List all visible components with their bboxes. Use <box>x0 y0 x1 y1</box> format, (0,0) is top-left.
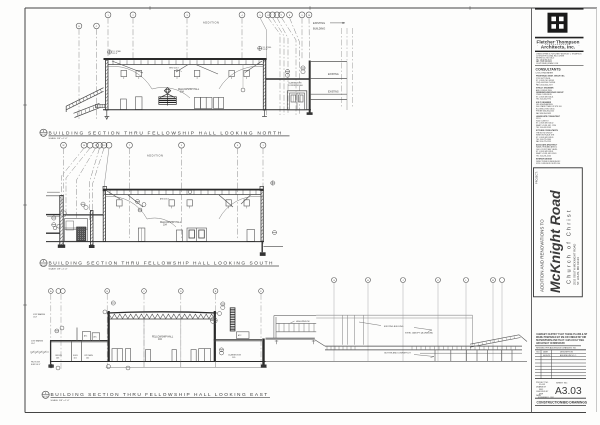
svg-text:EXISTING BUILDING: EXISTING BUILDING <box>384 326 404 328</box>
svg-text:AHU DUCT: AHU DUCT <box>160 198 169 201</box>
svg-text:NO.: NO. <box>537 351 541 353</box>
svg-text:9229 OLIVE BLVD SUITE 100: 9229 OLIVE BLVD SUITE 100 <box>536 163 560 165</box>
svg-text:W: W <box>63 145 65 147</box>
svg-text:ADDITION: ADDITION <box>147 154 163 158</box>
svg-text:ADDENDUM NO. 1: ADDENDUM NO. 1 <box>560 354 576 357</box>
svg-text:.: . <box>579 43 580 47</box>
svg-text:103: 103 <box>56 357 59 359</box>
svg-text:A3.03: A3.03 <box>43 396 49 399</box>
svg-text:HIGH WINDOW: HIGH WINDOW <box>296 321 310 323</box>
svg-text:122'-8": 122'-8" <box>263 49 269 51</box>
svg-text:DESCRIPTION: DESCRIPTION <box>560 351 574 353</box>
svg-text:Architects, Inc.: Architects, Inc. <box>541 45 575 51</box>
svg-text:BUILDING: BUILDING <box>313 27 325 31</box>
svg-text:TEL 314-432-5143: TEL 314-432-5143 <box>536 127 551 129</box>
svg-text:Fletcher·Thompson: Fletcher·Thompson <box>537 40 580 45</box>
svg-text:ST. LOUIS, MO 63124: ST. LOUIS, MO 63124 <box>576 257 580 285</box>
svg-text:EXISTING: EXISTING <box>328 92 339 94</box>
svg-text:ADDITION AND RENOVATIONS TO: ADDITION AND RENOVATIONS TO <box>540 219 545 292</box>
svg-text:EXISTING: EXISTING <box>328 74 339 76</box>
svg-text:VENT DUCT: VENT DUCT <box>169 68 179 70</box>
svg-text:FAX 314-725-1255: FAX 314-725-1255 <box>536 140 551 143</box>
svg-text:ELEV 100'-0": ELEV 100'-0" <box>31 364 41 366</box>
svg-text:CFLETCHER@FTAINC.COM: CFLETCHER@FTAINC.COM <box>536 62 559 65</box>
svg-text:BUILDING SECTION THRU FELLOWSH: BUILDING SECTION THRU FELLOWSHIP HALL LO… <box>49 130 283 136</box>
svg-text:ARCHITECT IN MISSOURI: ARCHITECT IN MISSOURI <box>536 342 565 345</box>
svg-text:A3.03: A3.03 <box>41 134 47 137</box>
svg-text:WERE PREPARED BY ME OR UNDER M: WERE PREPARED BY ME OR UNDER MY DIR <box>536 336 587 339</box>
svg-text:SHEET NO.: SHEET NO. <box>556 383 568 385</box>
svg-text:CONSTRUCTION/BID DRAWINGS: CONSTRUCTION/BID DRAWINGS <box>537 400 587 404</box>
svg-text:FELLOWSHIP HALL: FELLOWSHIP HALL <box>152 336 174 339</box>
svg-text:FIN. FLOOR: FIN. FLOOR <box>31 362 41 364</box>
svg-text:102: 102 <box>86 357 89 359</box>
svg-text:I HEREBY CERTIFY THAT THESE PL: I HEREBY CERTIFY THAT THESE PLANS & SP <box>536 333 588 336</box>
svg-text:BUILDING SECTION THRU FELLOWSH: BUILDING SECTION THRU FELLOWSHIP HALL LO… <box>49 260 275 266</box>
svg-text:FAX 636-394-1633: FAX 636-394-1633 <box>536 112 551 115</box>
svg-text:DATE: DATE <box>543 350 549 353</box>
svg-text:101: 101 <box>74 357 77 359</box>
svg-text:McKnight Road: McKnight Road <box>547 190 563 293</box>
svg-text:CONSULTANTS: CONSULTANTS <box>536 67 562 71</box>
svg-text:12'-8": 12'-8" <box>33 316 37 318</box>
svg-text:10'-0": 10'-0" <box>31 343 35 345</box>
svg-text:TEL 314-231-0100: TEL 314-231-0100 <box>536 155 551 157</box>
svg-text:SCALE: 1/8" = 1'-0": SCALE: 1/8" = 1'-0" <box>49 137 68 140</box>
svg-text:FAX: (314) 644-3727: FAX: (314) 644-3727 <box>536 83 553 86</box>
svg-text:A3.03: A3.03 <box>555 386 582 397</box>
svg-text:CORRIDOR 106: CORRIDOR 106 <box>288 85 304 87</box>
svg-text:GUTTER AND DOWNSPOUT: GUTTER AND DOWNSPOUT <box>384 351 411 354</box>
svg-text:04/20/92: 04/20/92 <box>543 355 550 357</box>
svg-text:SUPERVISION AND THAT I AM A DU: SUPERVISION AND THAT I AM A DULY REG <box>536 339 584 342</box>
svg-text:SCALE: 1/8" = 1'-0": SCALE: 1/8" = 1'-0" <box>51 399 70 402</box>
svg-text:STEEL CANOPY (ALUMINUM): STEEL CANOPY (ALUMINUM) <box>405 331 433 334</box>
svg-text:A3.03: A3.03 <box>41 264 47 267</box>
svg-text:REVISED PER ADDENDUM CHANGES:: REVISED PER ADDENDUM CHANGES: NO <box>536 347 576 350</box>
svg-text:EXISTING: EXISTING <box>313 21 325 25</box>
svg-text:PROJECT:: PROJECT: <box>535 171 539 184</box>
svg-text:122'-8": 122'-8" <box>112 53 118 55</box>
svg-text:ADDITION: ADDITION <box>203 21 219 25</box>
svg-text:TEL 314-434-7770: TEL 314-434-7770 <box>536 99 551 101</box>
svg-text:SCALE: 1/8" = 1'-0": SCALE: 1/8" = 1'-0" <box>49 267 68 270</box>
svg-text:.: . <box>537 43 538 47</box>
svg-text:BUILDING SECTION THRU FELLOWSH: BUILDING SECTION THRU FELLOWSHIP HALL LO… <box>51 392 269 398</box>
svg-text:CIVIL ENGINEER: CIVIL ENGINEER <box>536 73 554 75</box>
svg-text:J: J <box>403 280 404 282</box>
